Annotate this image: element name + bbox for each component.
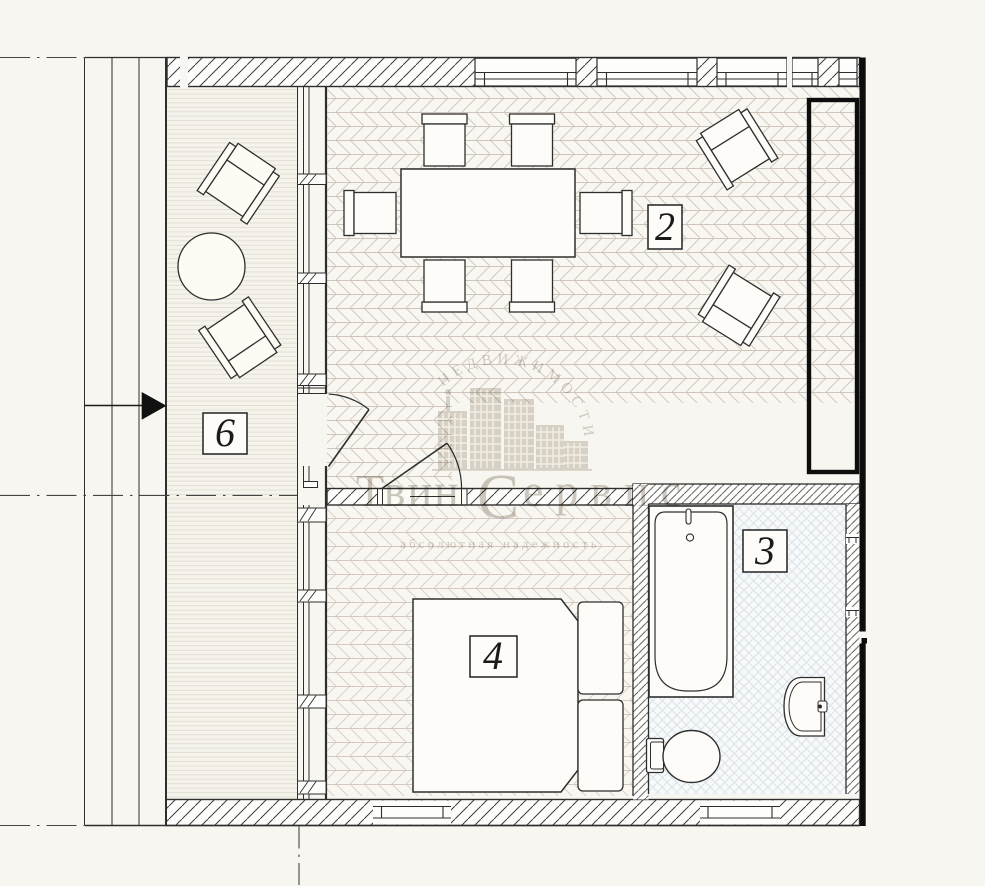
svg-text:ервис: ервис bbox=[523, 465, 693, 516]
svg-text:4: 4 bbox=[483, 633, 503, 678]
svg-text:абсолютная надежность: абсолютная надежность bbox=[400, 537, 600, 551]
svg-text:6: 6 bbox=[215, 410, 235, 455]
svg-text:3: 3 bbox=[754, 528, 775, 573]
svg-text:2: 2 bbox=[655, 204, 675, 249]
svg-text:Твин: Твин bbox=[356, 465, 461, 516]
svg-text:С: С bbox=[477, 462, 519, 532]
